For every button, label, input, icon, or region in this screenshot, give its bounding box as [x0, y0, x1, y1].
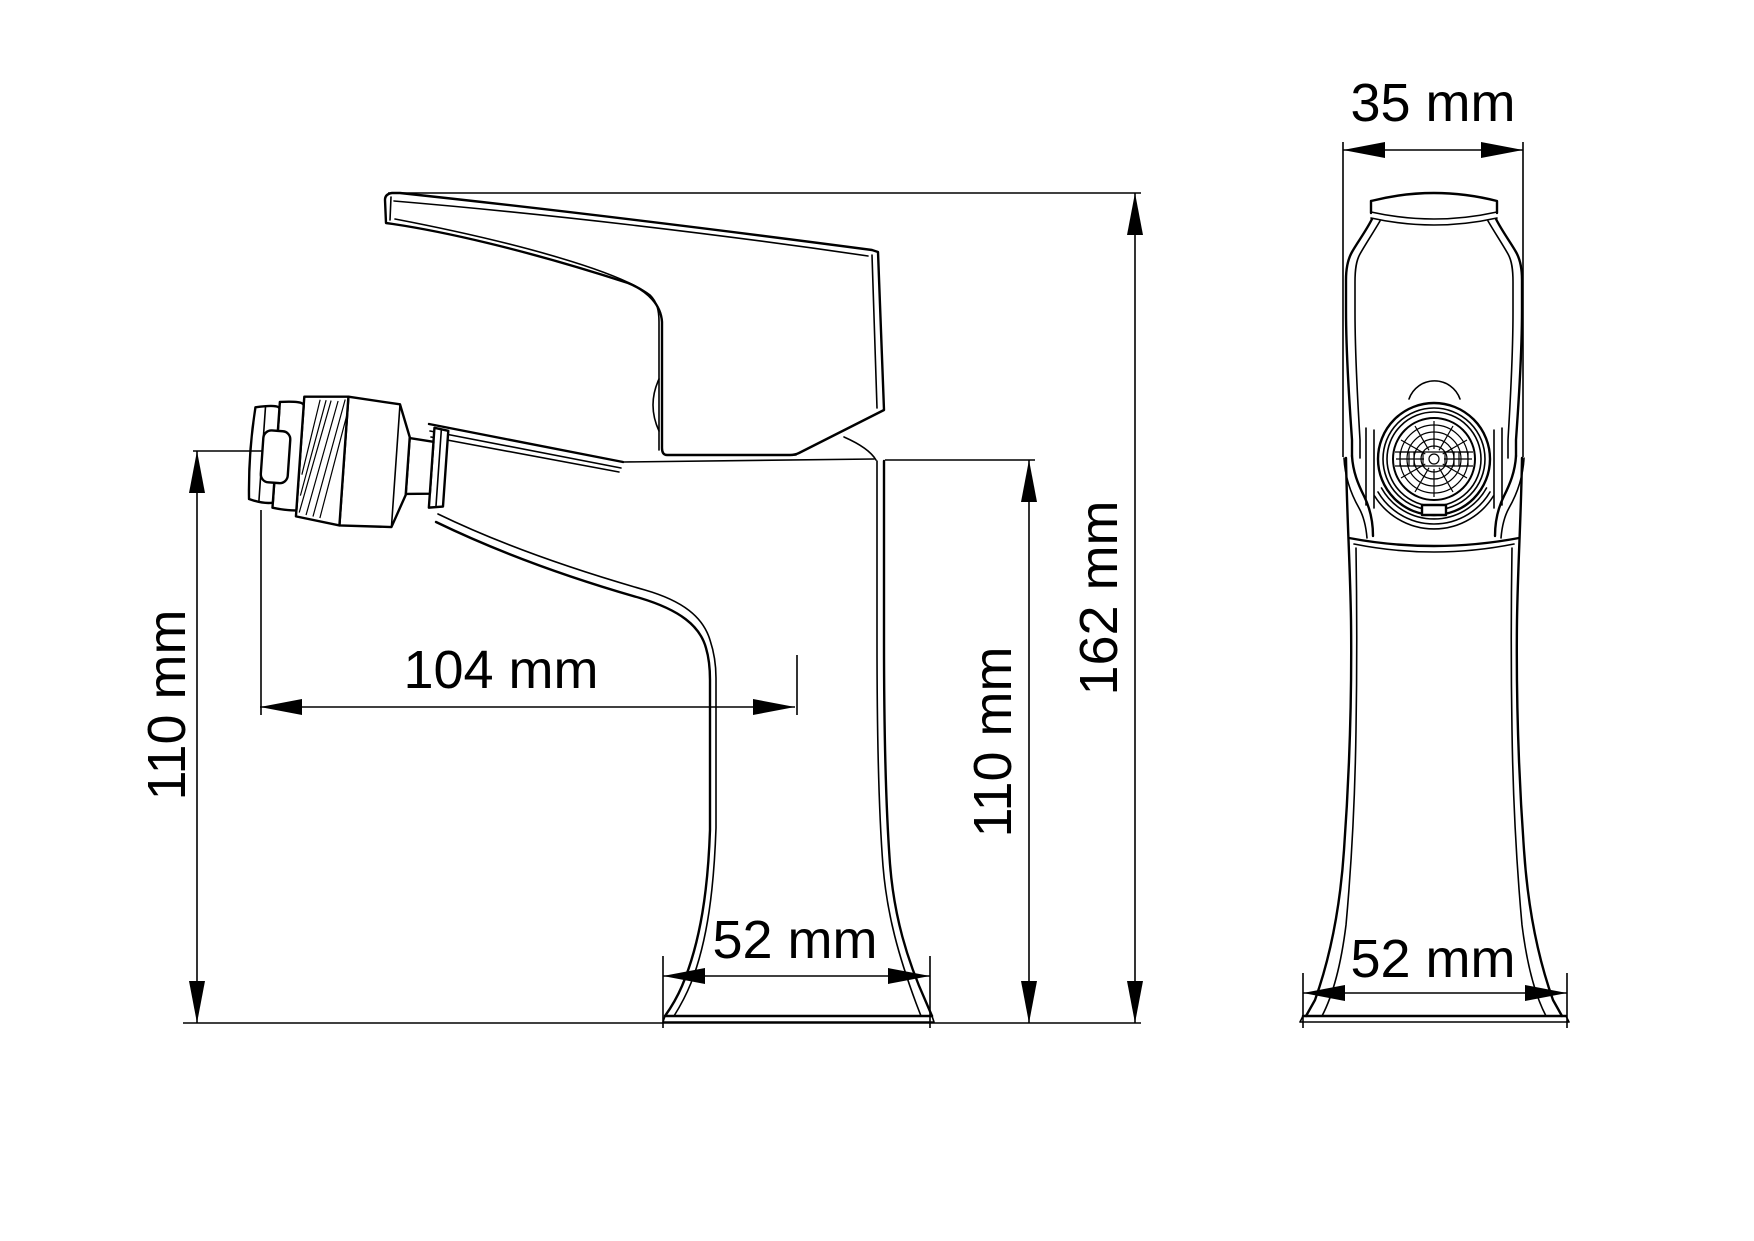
dimension-base-width-side: 52 mm: [663, 910, 930, 1028]
dimension-label-handle-width: 35 mm: [1350, 73, 1515, 133]
side-view-aerator: [246, 390, 451, 532]
dimension-label-base-width-front: 52 mm: [1350, 929, 1515, 989]
dimension-label-base-width-side: 52 mm: [712, 910, 877, 970]
spray-head-tab: [1422, 505, 1446, 515]
dimension-total-height: 162 mm: [1069, 193, 1143, 1023]
front-view: [1300, 193, 1569, 1022]
dimension-label-spout-reach: 104 mm: [403, 640, 598, 700]
front-view-spray-head: [1375, 381, 1494, 529]
side-view: [246, 193, 934, 1022]
dimensions: 110 mm 104 mm 110 mm 162 mm: [137, 73, 1567, 1028]
dimension-outlet-height-right: 110 mm: [885, 460, 1037, 1023]
aerator-face-plate: [260, 430, 291, 484]
technical-drawing-canvas: 110 mm 104 mm 110 mm 162 mm: [0, 0, 1754, 1241]
dimension-handle-width: 35 mm: [1343, 73, 1523, 457]
faucet-dimension-drawing: 110 mm 104 mm 110 mm 162 mm: [0, 0, 1754, 1241]
dimension-label-outlet-height-right: 110 mm: [963, 646, 1023, 837]
side-view-lever-handle: [385, 193, 884, 455]
dimension-label-total-height: 162 mm: [1069, 500, 1129, 695]
dimension-label-outlet-height-left: 110 mm: [137, 609, 197, 800]
dimension-outlet-height-left: 110 mm: [137, 451, 262, 1023]
